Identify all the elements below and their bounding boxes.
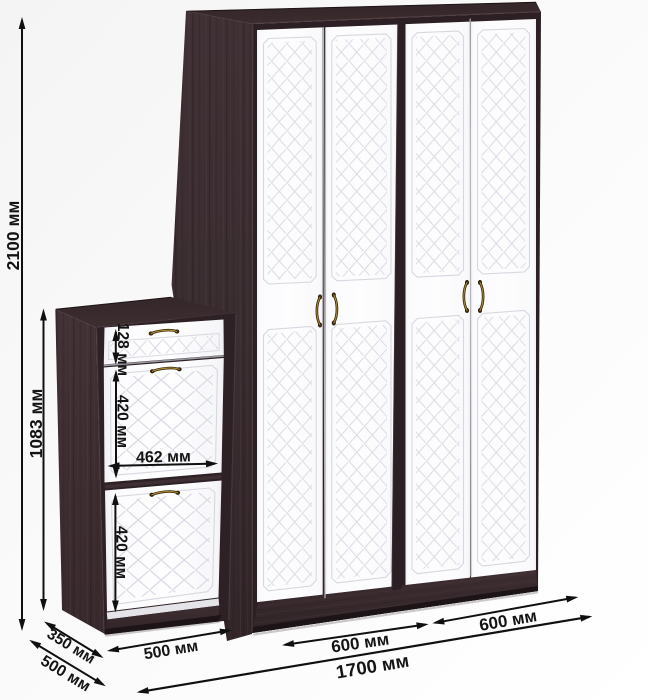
svg-text:462 мм: 462 мм: [136, 448, 191, 466]
svg-text:420 мм: 420 мм: [113, 395, 130, 448]
svg-text:128 мм: 128 мм: [114, 323, 131, 376]
svg-text:2100 мм: 2100 мм: [3, 201, 23, 271]
svg-text:1083 мм: 1083 мм: [26, 389, 46, 459]
svg-text:420 мм: 420 мм: [113, 526, 130, 579]
